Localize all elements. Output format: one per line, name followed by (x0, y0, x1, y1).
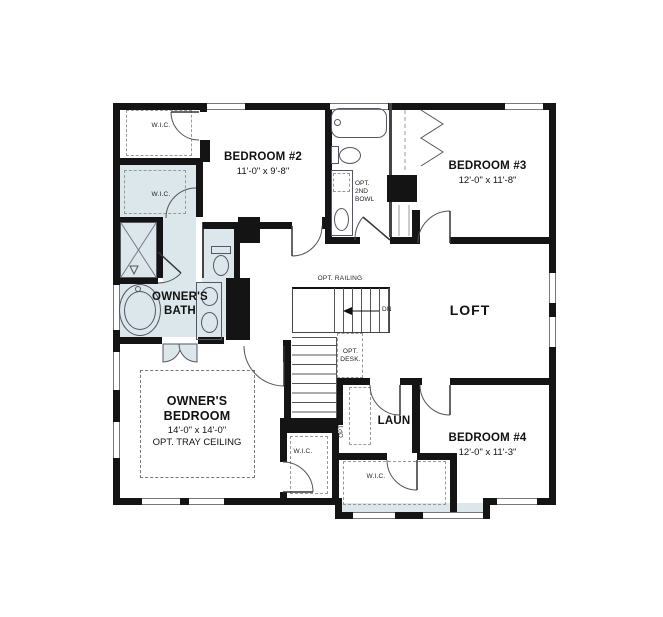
room-dims: 12'-0" x 11'-8" (425, 175, 550, 186)
room-name: OWNER'S BEDROOM (141, 394, 253, 424)
door-arc (418, 211, 450, 243)
door-arc (370, 385, 400, 415)
toilet-bowl (339, 147, 361, 164)
wall-segment (157, 222, 163, 278)
wall-segment (113, 337, 162, 344)
room-label-bedroom3: BEDROOM #3 12'-0" x 11'-8" (425, 160, 550, 186)
room-name: BEDROOM #4 (425, 432, 550, 446)
door-arc (292, 226, 322, 256)
wic-shelving (343, 461, 446, 505)
window (549, 317, 556, 347)
wall-segment (390, 237, 418, 244)
wall-segment (389, 103, 392, 237)
room-label-owners-bath: OWNER'S BATH (143, 291, 217, 318)
shower-stall (120, 222, 157, 278)
door-leaf (363, 217, 390, 240)
wic-shelving (126, 110, 192, 156)
toilet-tank (211, 246, 231, 254)
wall-segment (450, 378, 556, 385)
door-arc (420, 385, 450, 415)
wall-segment (549, 103, 556, 505)
wall-segment (450, 453, 457, 512)
sink-bowl (334, 208, 349, 231)
window (549, 273, 556, 303)
window (142, 498, 180, 505)
opt-cabinet-label: OPT. CABINET (339, 389, 349, 443)
room-label-owners-bedroom: OWNER'S BEDROOM 14'-0" x 14'-0" OPT. TRA… (122, 394, 272, 448)
floor-plan: BEDROOM #2 11'-0" x 9'-8" BEDROOM #3 12'… (0, 0, 663, 617)
window (207, 103, 245, 110)
wic-label: W.I.C. (354, 473, 398, 481)
wall-segment (280, 492, 287, 505)
wall-segment (202, 222, 204, 278)
window (353, 512, 395, 519)
bifold-door (421, 110, 443, 166)
wall-segment (387, 175, 417, 202)
wall-segment (283, 340, 291, 362)
wall-segment (337, 378, 370, 385)
wall-segment (120, 158, 203, 165)
room-name: BEDROOM #3 (425, 160, 550, 174)
room-dims: 11'-0" x 9'-8" (198, 166, 328, 177)
wall-segment (400, 378, 422, 385)
toilet-bowl (213, 255, 229, 276)
stair-risers (292, 345, 336, 418)
tub-faucet (334, 119, 341, 126)
wic-label: W.I.C. (281, 448, 325, 456)
opt-desk-label: OPT. DESK. (338, 348, 363, 363)
window (497, 498, 537, 505)
wall-segment (325, 237, 360, 244)
room-note: OPT. TRAY CEILING (122, 437, 272, 448)
wall-segment (238, 217, 260, 243)
wall-segment (337, 453, 387, 460)
double-door (163, 344, 197, 362)
wall-segment (280, 418, 338, 433)
opt-2nd-bowl-label: OPT. 2ND BOWL (355, 180, 383, 204)
window (505, 103, 543, 110)
room-dims: 12'-0" x 11'-3" (425, 447, 550, 458)
window (423, 512, 483, 519)
wall-segment (226, 278, 250, 340)
room-name: BEDROOM #2 (198, 151, 328, 165)
wall-segment (203, 222, 292, 229)
wall-segment (284, 362, 291, 420)
wall-segment (113, 278, 158, 284)
wall-segment (450, 237, 556, 244)
window (113, 422, 120, 458)
window (113, 352, 120, 390)
room-label-loft: LOFT (425, 302, 515, 319)
toilet-tank (331, 146, 339, 164)
room-dims: 14'-0" x 14'-0" (122, 425, 272, 436)
room-label-bedroom4: BEDROOM #4 12'-0" x 11'-3" (425, 432, 550, 458)
room-label-laundry: LAUN (368, 415, 420, 429)
down-label: DN (382, 306, 400, 314)
wic-label: W.I.C. (139, 191, 183, 199)
tub-faucet (135, 286, 141, 292)
opt-railing-label: OPT. RAILING (298, 275, 382, 283)
wic-label: W.I.C. (139, 122, 183, 130)
window (189, 498, 224, 505)
wic-shelving (290, 436, 328, 494)
wall-segment (332, 433, 339, 505)
room-label-bedroom2: BEDROOM #2 11'-0" x 9'-8" (198, 151, 328, 177)
wall-segment (200, 103, 207, 112)
